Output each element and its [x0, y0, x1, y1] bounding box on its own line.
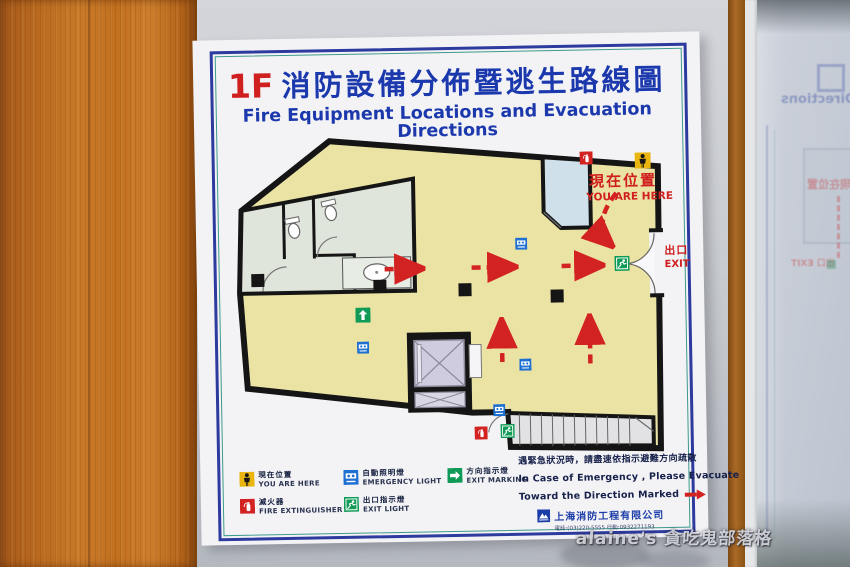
glass-panel-reflection: Directions 現在位置 出口 EXIT: [757, 0, 850, 567]
you-are-here-icon: [239, 472, 254, 487]
photo-scene: Directions 現在位置 出口 EXIT 1F消防設備分佈暨逃生路線圖 F…: [0, 0, 850, 567]
emergency-light-icon: [493, 404, 505, 416]
exit-marking-icon: [355, 307, 370, 322]
fire-extinguisher-icon: [240, 499, 255, 514]
fire-extinguisher-icon: [475, 426, 488, 439]
legend-label-en: EXIT LIGHT: [363, 504, 410, 513]
legend-item-exit-marking: 方向指示燈EXIT MARKING: [447, 467, 527, 485]
wall-stain: [640, 550, 710, 567]
elevator-shaft: [407, 331, 482, 412]
reflected-border: [774, 130, 775, 540]
you-are-here-label-en: YOU ARE HERE: [585, 190, 673, 204]
legend-label-en: EMERGENCY LIGHT: [362, 477, 441, 486]
exit-light-icon: [344, 497, 359, 512]
wood-door-panel: [0, 0, 197, 567]
notice-english-2: Toward the Direction Marked: [519, 489, 680, 503]
emergency-light-icon: [343, 470, 358, 485]
notice-english-1: In Case of Emergency , Please Evacuate: [518, 471, 696, 485]
floor-label: 1F: [228, 66, 274, 106]
exit-marking-icon: [447, 468, 462, 483]
you-are-here-icon: [635, 152, 651, 168]
evacuation-sign-board: 1F消防設備分佈暨逃生路線圖 Fire Equipment Locations …: [192, 31, 708, 545]
exit-light-icon: [614, 256, 629, 271]
legend-item-emergency-light: 自動照明燈EMERGENCY LIGHT: [343, 468, 441, 486]
legend-item-fire-extinguisher: 滅火器FIRE EXTINGUISHER: [240, 497, 343, 516]
reflected-border: [766, 125, 768, 545]
reflected-title-glyph: [817, 64, 845, 92]
emergency-light-icon: [515, 238, 527, 250]
legend-label-en: FIRE EXTINGUISHER: [259, 506, 343, 516]
elevator-door: [469, 344, 482, 377]
legend-item-exit-light: 出口指示燈EXIT LIGHT: [344, 496, 410, 514]
reflected-you-are-here: 現在位置: [807, 176, 850, 192]
photo-watermark: alaine's 貪吃鬼部落格: [575, 524, 773, 549]
direction-arrow-icon: [685, 492, 697, 496]
legend-label-en: YOU ARE HERE: [258, 479, 319, 488]
company-name: 上海消防工程有限公司: [554, 506, 664, 523]
top-right-room: [543, 156, 591, 228]
title-chinese: 消防設備分佈暨逃生路線圖: [281, 62, 666, 103]
reflected-dashed-arrow: [837, 196, 840, 258]
emergency-notice: 遇緊急狀況時，請盡速依指示避難方向疏散 In Case of Emergency…: [518, 451, 697, 533]
reflected-room: [803, 148, 850, 244]
notice-chinese: 遇緊急狀況時，請盡速依指示避難方向疏散: [518, 451, 696, 467]
exit-label-en: EXIT: [664, 259, 689, 270]
emergency-light-icon: [357, 342, 369, 354]
company-logo-icon: [537, 509, 550, 522]
fire-extinguisher-icon: [580, 151, 593, 164]
you-are-here-label-zh: 現在位置: [589, 171, 657, 190]
floor-plan: 現在位置 YOU ARE HERE 出口 EXIT: [222, 126, 698, 475]
exit-label-zh: 出口: [664, 243, 688, 257]
exit-light-icon: [500, 424, 514, 438]
emergency-light-icon: [519, 359, 531, 371]
wood-frame-strip: [728, 0, 745, 567]
legend-item-you-are-here: 現在位置YOU ARE HERE: [239, 470, 320, 488]
reflected-title-text: Directions: [781, 92, 850, 107]
reflected-exit-light: [827, 260, 836, 269]
